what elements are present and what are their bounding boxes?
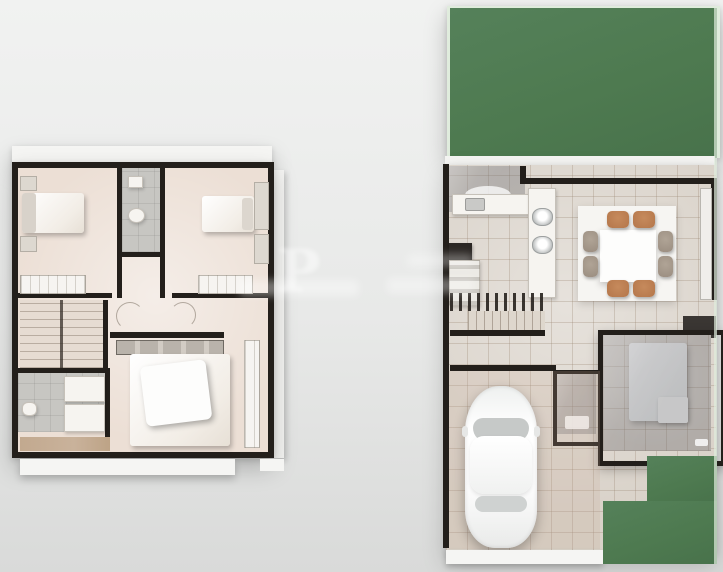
car-roof bbox=[470, 436, 532, 494]
dining-chair bbox=[658, 231, 673, 252]
door-arc bbox=[116, 302, 144, 330]
bedroom-glass-roof bbox=[603, 335, 711, 451]
wall-master-top bbox=[110, 332, 224, 338]
nightstand bbox=[20, 236, 37, 252]
car-mirror bbox=[462, 426, 468, 437]
shower bbox=[64, 376, 105, 402]
curb bbox=[446, 550, 603, 564]
car-mirror bbox=[534, 426, 540, 437]
staircase-ground bbox=[468, 311, 545, 331]
kitchen-sink bbox=[465, 198, 485, 211]
dining-chair bbox=[658, 256, 673, 277]
wood-balcony-strip bbox=[20, 437, 110, 451]
dining-chair bbox=[633, 211, 655, 228]
upper-floor-shell bbox=[12, 162, 274, 458]
wall-bath-left bbox=[117, 168, 122, 298]
desk-shelf bbox=[254, 182, 269, 230]
wall-bath-bottom bbox=[117, 252, 165, 257]
bathroom-sink bbox=[128, 208, 145, 223]
master-closet bbox=[244, 340, 260, 448]
car-rear-window bbox=[475, 496, 527, 512]
island-sink-basin bbox=[532, 208, 553, 226]
dining-chair bbox=[583, 231, 598, 252]
toilet bbox=[22, 402, 37, 416]
roof-trim-bottom bbox=[20, 459, 235, 475]
nightstand bbox=[20, 176, 37, 191]
front-lawn-lower bbox=[603, 501, 717, 564]
wall-bath2-right bbox=[105, 368, 110, 442]
master-bed-pillow bbox=[140, 359, 213, 427]
wall-bath-right bbox=[160, 168, 165, 298]
floor-item bbox=[695, 439, 708, 446]
floor-plan-render: P bbox=[0, 0, 723, 572]
toilet bbox=[128, 176, 143, 188]
dining-chair bbox=[607, 211, 629, 228]
closet-left-bedroom bbox=[20, 275, 86, 294]
dining-chair bbox=[583, 256, 598, 277]
rear-wall-trim bbox=[445, 156, 715, 165]
closet-right-bedroom bbox=[198, 275, 253, 294]
bathtub bbox=[64, 404, 105, 432]
ground-floor-plan bbox=[443, 0, 719, 570]
wall-top bbox=[520, 178, 714, 184]
window-strip-right bbox=[700, 188, 712, 300]
dining-chair bbox=[633, 280, 655, 297]
wall-stairs-right bbox=[103, 300, 108, 373]
dining-chair bbox=[607, 280, 629, 297]
door-arc bbox=[170, 302, 196, 328]
ground-bedroom bbox=[598, 330, 723, 466]
upper-floor-plan bbox=[8, 145, 285, 480]
roof-trim-top bbox=[12, 146, 272, 162]
roof-trim-bottom-right bbox=[260, 459, 284, 471]
bed-pillow bbox=[22, 193, 36, 233]
dining-table bbox=[600, 230, 656, 282]
headboard-shelf bbox=[116, 340, 224, 355]
island-sink-basin bbox=[532, 236, 553, 254]
bed-pillow bbox=[242, 198, 253, 230]
kitchen-counter bbox=[452, 194, 532, 215]
dresser bbox=[254, 234, 269, 264]
front-lawn-upper bbox=[647, 456, 717, 503]
stair-railing-spindles bbox=[450, 293, 545, 311]
roof-trim-right bbox=[274, 170, 284, 458]
stair-divider bbox=[60, 300, 63, 368]
wall-stairs-bottom bbox=[450, 330, 545, 336]
backyard-lawn bbox=[447, 6, 720, 158]
lawn-edge-strip bbox=[714, 6, 717, 564]
car bbox=[465, 386, 537, 548]
